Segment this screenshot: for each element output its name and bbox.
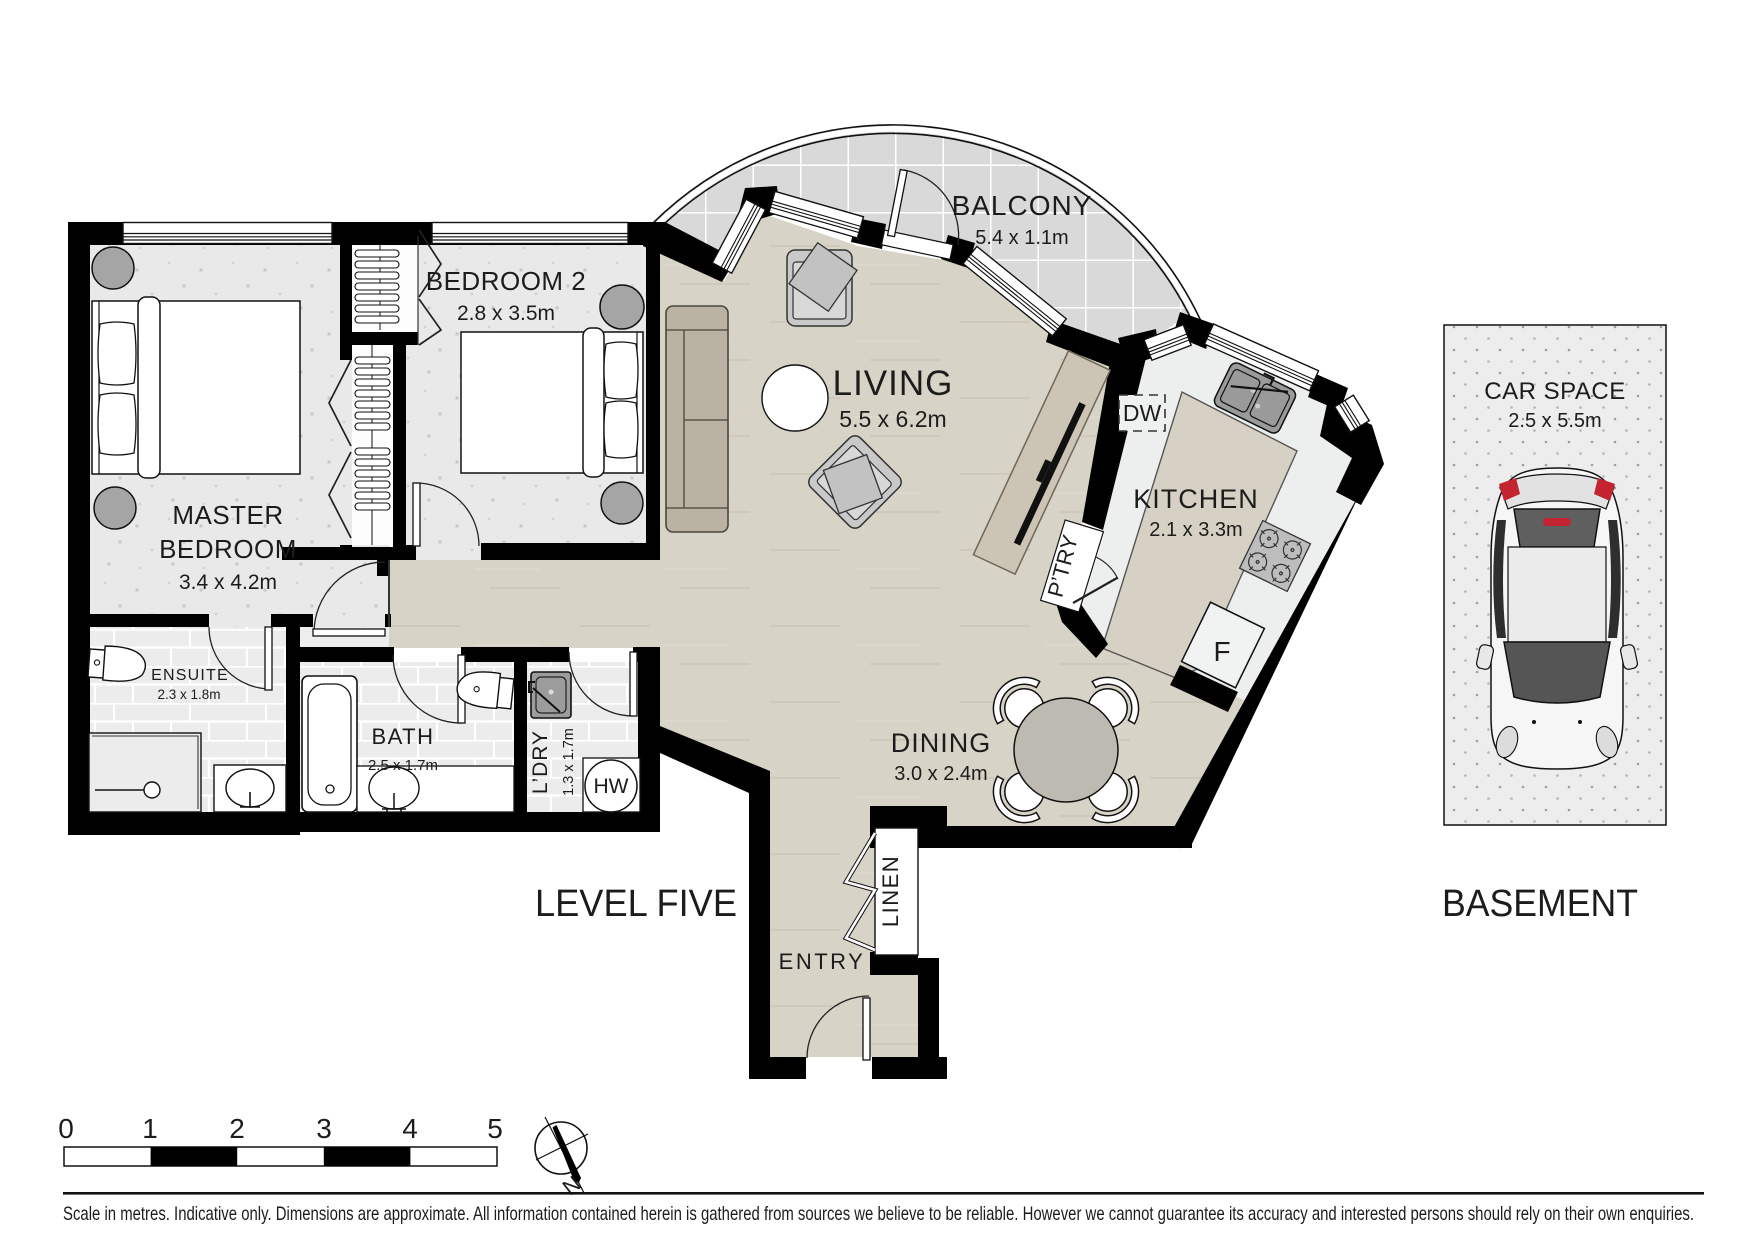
svg-text:BEDROOM: BEDROOM [159, 534, 297, 564]
svg-text:3.4 x 4.2m: 3.4 x 4.2m [179, 571, 277, 594]
svg-text:3: 3 [316, 1113, 332, 1144]
svg-text:LEVEL FIVE: LEVEL FIVE [535, 883, 737, 925]
svg-text:CAR SPACE: CAR SPACE [1484, 378, 1625, 405]
svg-text:1.3 x 1.7m: 1.3 x 1.7m [561, 728, 577, 796]
svg-text:0: 0 [58, 1113, 74, 1144]
svg-text:4: 4 [402, 1113, 418, 1144]
svg-text:ENTRY: ENTRY [779, 949, 866, 974]
svg-text:3.0 x 2.4m: 3.0 x 2.4m [894, 763, 987, 785]
svg-text:5.5 x 6.2m: 5.5 x 6.2m [839, 406, 946, 432]
svg-text:LINEN: LINEN [878, 855, 903, 927]
svg-text:5: 5 [487, 1113, 503, 1144]
svg-text:DW: DW [1123, 400, 1162, 426]
svg-text:MASTER: MASTER [172, 500, 283, 530]
svg-text:2.5 x 1.7m: 2.5 x 1.7m [368, 757, 438, 774]
svg-text:ENSUITE: ENSUITE [151, 667, 229, 684]
svg-text:BALCONY: BALCONY [952, 190, 1093, 221]
svg-text:2.5 x 5.5m: 2.5 x 5.5m [1508, 410, 1601, 432]
svg-text:BASEMENT: BASEMENT [1442, 883, 1638, 925]
svg-text:F: F [1213, 636, 1230, 667]
svg-text:BATH: BATH [371, 724, 434, 749]
svg-text:2.3 x 1.8m: 2.3 x 1.8m [157, 687, 220, 702]
svg-text:KITCHEN: KITCHEN [1133, 484, 1259, 514]
svg-text:1: 1 [142, 1113, 158, 1144]
svg-text:2.8 x 3.5m: 2.8 x 3.5m [457, 302, 555, 325]
svg-text:L’DRY: L’DRY [529, 730, 552, 794]
svg-text:2.1 x 3.3m: 2.1 x 3.3m [1149, 519, 1242, 541]
svg-text:HW: HW [594, 775, 629, 798]
svg-text:Scale in metres. Indicative on: Scale in metres. Indicative only. Dimens… [63, 1203, 1694, 1225]
svg-text:DINING: DINING [891, 728, 992, 758]
svg-text:2: 2 [229, 1113, 245, 1144]
svg-text:5.4 x 1.1m: 5.4 x 1.1m [975, 227, 1068, 249]
svg-text:LIVING: LIVING [833, 364, 954, 403]
svg-text:BEDROOM 2: BEDROOM 2 [426, 266, 587, 296]
